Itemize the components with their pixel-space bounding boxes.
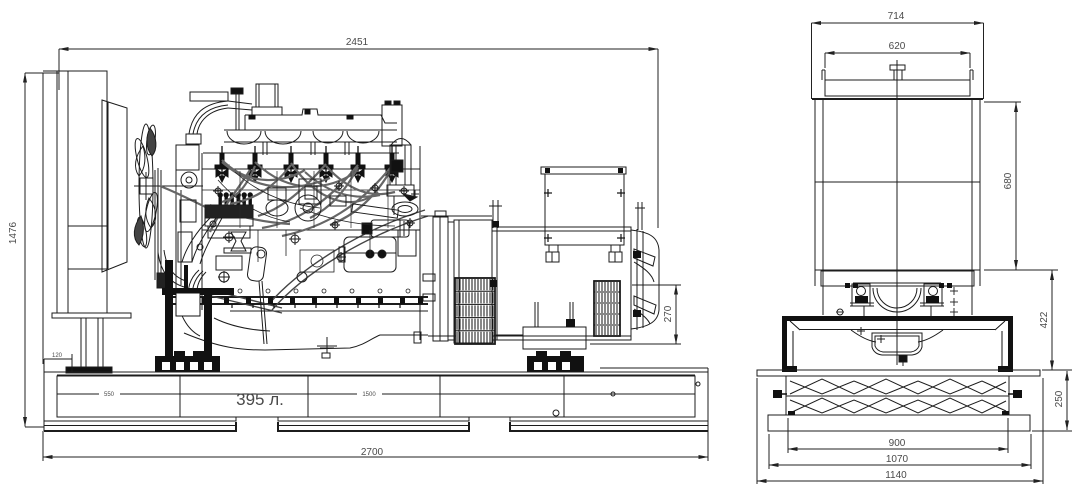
- svg-text:250: 250: [1054, 390, 1065, 407]
- svg-text:120: 120: [52, 353, 63, 359]
- svg-text:1476: 1476: [8, 221, 19, 244]
- svg-text:395 л.: 395 л.: [236, 390, 284, 409]
- svg-text:620: 620: [889, 41, 906, 52]
- svg-text:2451: 2451: [346, 37, 369, 48]
- svg-text:270: 270: [663, 305, 674, 322]
- svg-text:1070: 1070: [886, 454, 909, 465]
- svg-text:714: 714: [888, 11, 905, 22]
- svg-text:422: 422: [1039, 311, 1050, 328]
- svg-text:680: 680: [1003, 172, 1014, 189]
- svg-text:1500: 1500: [362, 392, 376, 398]
- svg-text:900: 900: [889, 438, 906, 449]
- svg-text:2700: 2700: [361, 447, 384, 458]
- svg-text:1140: 1140: [885, 470, 907, 481]
- svg-text:550: 550: [104, 392, 115, 398]
